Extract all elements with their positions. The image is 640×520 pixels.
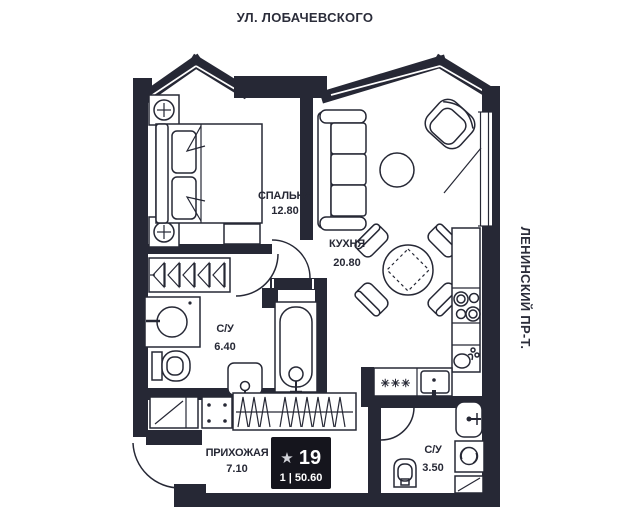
bedroom: СПАЛЬНЯ 12.80 [149,95,312,247]
armchair [420,94,479,153]
wall-bedroom-kitchen [300,90,313,240]
bathtub [275,302,317,392]
street-label-top: УЛ. ЛОБАЧЕВСКОГО [237,10,374,25]
star-icon: ★ [280,450,293,467]
wall-bottom [174,493,500,507]
kitchen-area: 20.80 [333,257,361,269]
street-label-right: ЛЕНИНСКИЙ ПР-Т. [518,227,533,349]
kitchen-label: КУХНЯ [329,238,365,250]
kitchen-living: ✳✳✳ КУХНЯ 20.80 [318,94,480,398]
dining-chair [354,281,391,318]
washbasin-unit [145,297,200,347]
wall-left [133,78,148,437]
sofa-backrest [318,112,331,228]
toilet-tank [152,352,162,380]
cabinet-dots [202,397,232,428]
bathroom-small-door-arc [381,407,414,440]
sofa-armrest [320,110,366,123]
bathroom-large-area: 6.40 [214,341,235,353]
floor-plan-page: УЛ. ЛОБАЧЕВСКОГО ЛЕНИНСКИЙ ПР-Т. [0,0,640,520]
bathroom-large-label: С/У [216,323,234,335]
wall-entry-stub [146,430,202,445]
wall-kitchen-stub [361,367,374,407]
nightstand [224,224,260,244]
bathroom-small-area: 3.50 [422,462,443,474]
sofa-cushion [331,123,366,154]
wall-top-middle [234,76,327,98]
apartment-badge: ★ 19 1 | 50.60 [271,437,331,489]
wall-lamp-icon [149,95,179,125]
door-frame-notch [272,279,274,289]
entrance-door-arc [133,443,180,488]
toilet [152,351,190,381]
wall-bathroom-small-left [368,407,381,500]
coffee-table [380,153,414,187]
bay-bedroom-left-slope [146,62,196,97]
closet-hangers [149,258,230,292]
sofa [318,110,366,230]
washbasin-small [228,363,262,397]
kitchen-counter-right [452,228,480,372]
bedroom-area: 12.80 [271,205,299,217]
sofa-cushion [331,185,366,216]
bedroom-label: СПАЛЬНЯ [258,190,312,202]
bay-kitchen-window-glazing [331,66,440,95]
hallway-area: 7.10 [226,463,247,475]
hallway-label: ПРИХОЖАЯ [206,447,269,459]
kitchen-counter-bottom: ✳✳✳ [374,368,452,399]
sofa-cushion [331,154,366,185]
door-frame-notch [312,279,314,289]
washbasin [456,402,482,437]
bed-headboard [156,124,168,223]
sofa-armrest [320,217,366,230]
washing-machine-icon [455,441,484,472]
apartment-info: 1 | 50.60 [280,472,323,484]
bay-kitchen-right-slope [440,62,489,92]
dining-set [354,223,463,318]
freezer-symbol: ✳✳✳ [381,378,412,390]
apartment-number: 19 [299,447,321,469]
shoe-cabinet [150,397,198,428]
dining-table [383,245,433,295]
toilet-bowl [162,351,190,381]
window-opening-direction-line [444,148,481,193]
corner-unit [455,476,483,493]
wardrobe-hangers [233,393,356,430]
floor-plan: УЛ. ЛОБАЧЕВСКОГО ЛЕНИНСКИЙ ПР-Т. [0,0,640,520]
bathroom-small-label: С/У [424,444,442,456]
bed [156,124,262,223]
toilet [394,459,416,487]
bathroom-small: С/У 3.50 [394,402,484,493]
bed-pillow [172,131,196,173]
